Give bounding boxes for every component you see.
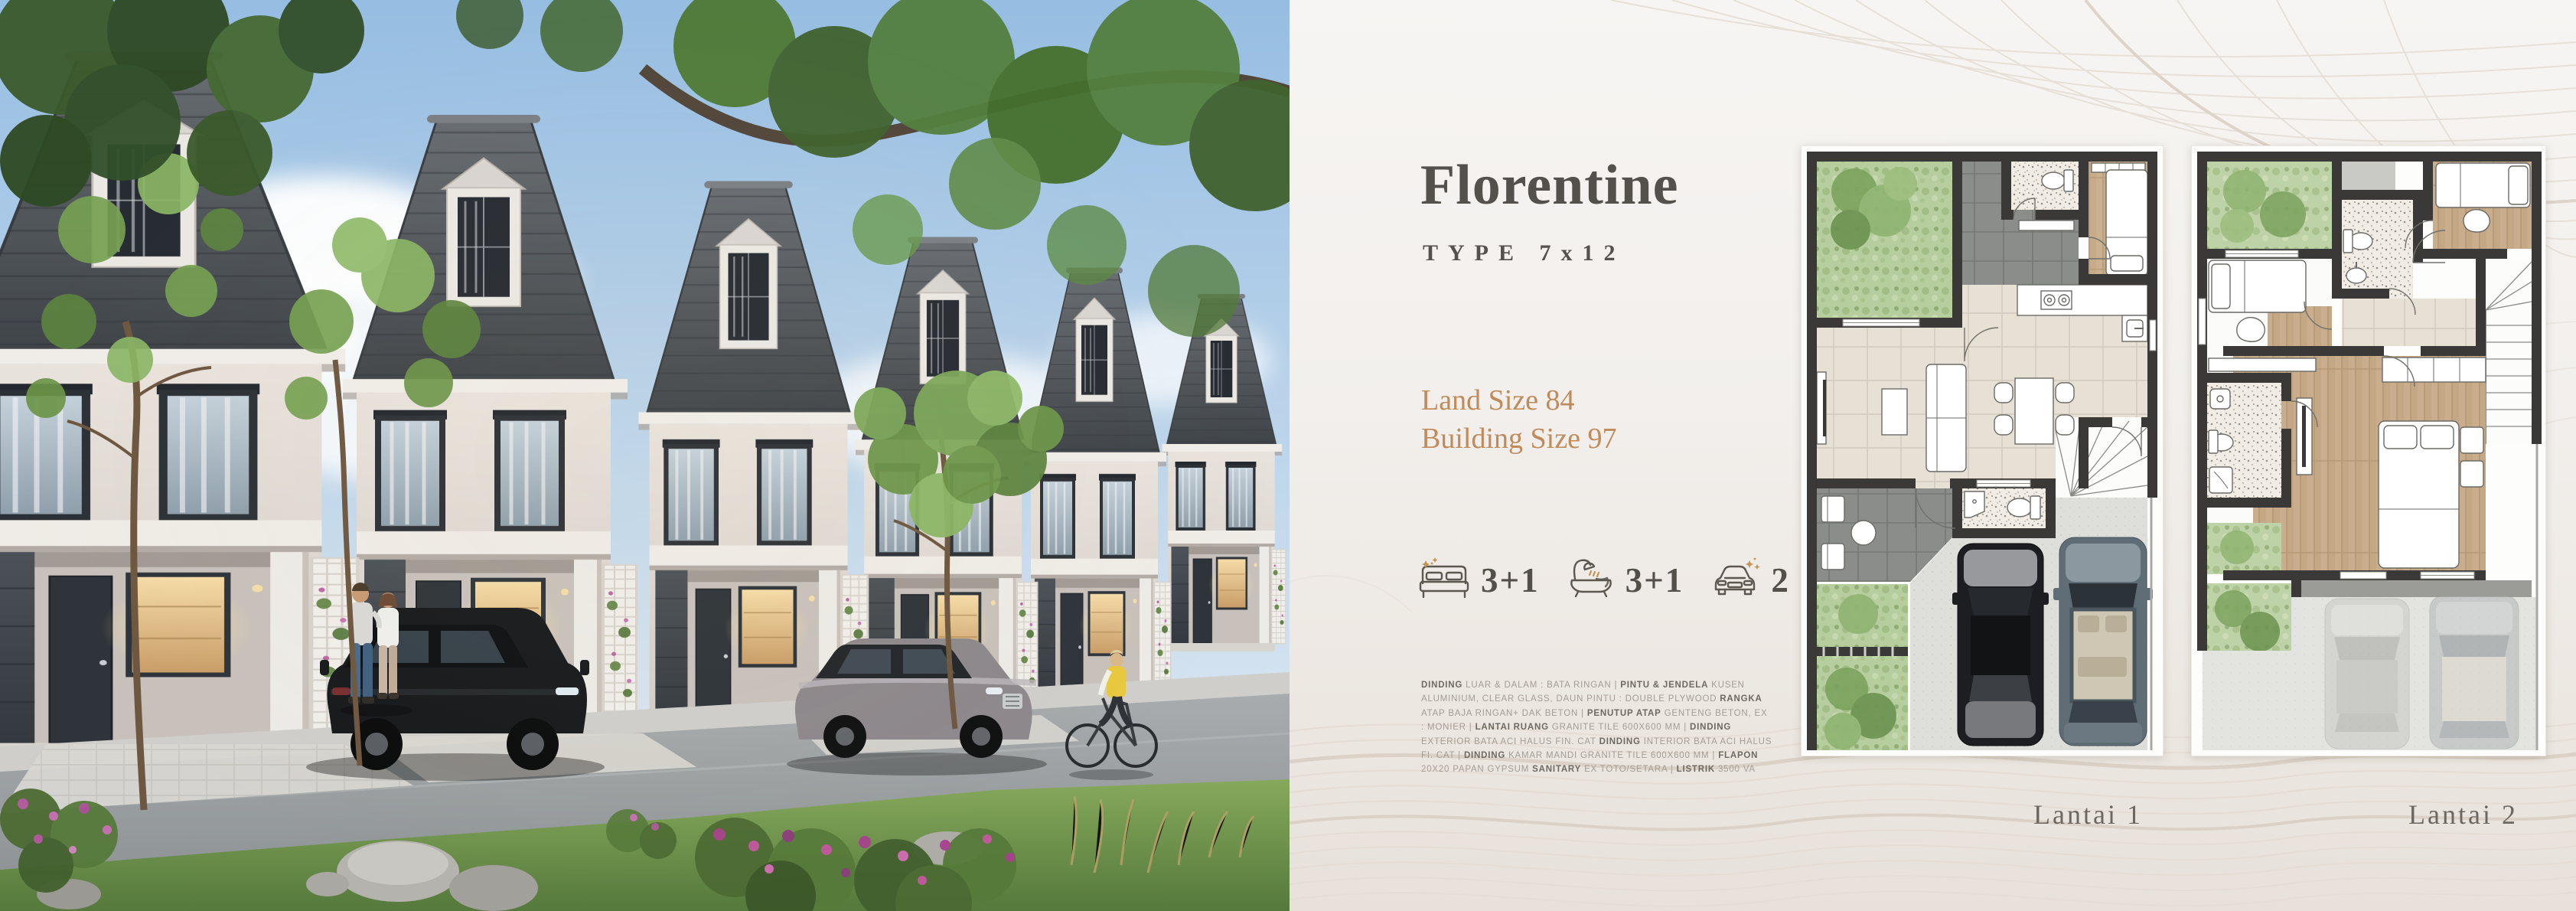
carport-count: 2 xyxy=(1771,559,1790,598)
bed-icon xyxy=(1417,556,1472,600)
plan1-gray-suv xyxy=(2053,537,2153,746)
sparkles xyxy=(1746,558,1760,570)
building-size: Building Size 97 xyxy=(1421,420,1616,458)
bathroom-count: 3+1 xyxy=(1625,559,1684,598)
floorplan-2-label: Lantai 2 xyxy=(2408,801,2518,828)
floorplan-2-drawing xyxy=(2191,145,2546,756)
brochure-page: Florentine TYPE 7x12 Land Size 84 Buildi… xyxy=(0,0,2576,911)
bedroom-stat: 3+1 xyxy=(1417,556,1540,600)
spec-paragraph: DINDING LUAR & DALAM : BATA RINGAN | PIN… xyxy=(1421,678,1773,777)
bath-icon xyxy=(1566,556,1616,600)
floorplan-1-drawing xyxy=(1801,145,2164,756)
hero-photo-illustration xyxy=(0,0,1290,911)
size-block: Land Size 84 Building Size 97 xyxy=(1421,381,1616,458)
type-subtitle: TYPE 7x12 xyxy=(1423,242,1625,265)
stats-row: 3+1 3+1 xyxy=(1417,556,1816,600)
carport-roof-edge xyxy=(2291,580,2532,597)
floorplan-lantai-1 xyxy=(1801,145,2164,756)
carport-stat: 2 xyxy=(1710,556,1790,600)
hero-photo xyxy=(0,0,1290,911)
car-icon xyxy=(1710,556,1762,600)
land-size: Land Size 84 xyxy=(1421,381,1616,420)
plan1-black-car xyxy=(1952,544,2049,746)
bedroom-count: 3+1 xyxy=(1481,559,1540,598)
info-panel: Florentine TYPE 7x12 Land Size 84 Buildi… xyxy=(1290,0,2576,911)
sunlight-overlay xyxy=(0,0,1290,911)
floorplan-1-label: Lantai 1 xyxy=(2033,801,2143,828)
water-drops xyxy=(1590,571,1599,576)
floorplan-lantai-2 xyxy=(2191,145,2546,756)
bathroom-stat: 3+1 xyxy=(1566,556,1684,600)
page-title: Florentine xyxy=(1420,157,1678,214)
